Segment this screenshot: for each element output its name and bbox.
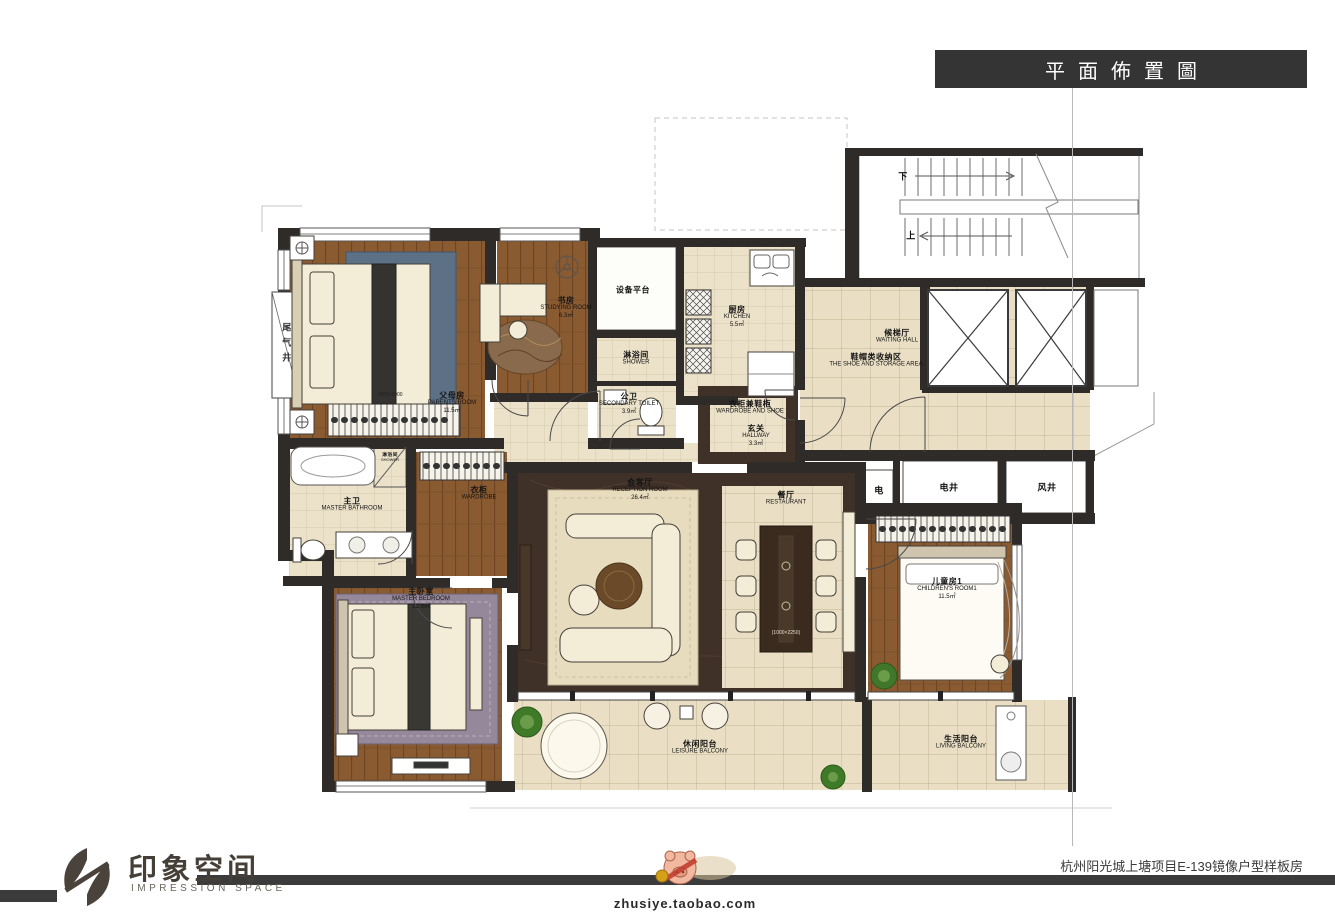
wardrobe-rail: [420, 452, 504, 480]
kitchen-appliance: [686, 319, 711, 344]
impression-space-logo-icon: [56, 846, 118, 908]
page-title: 平面佈置圖: [1032, 55, 1210, 84]
room-label-shower-stall: 淋浴间 SHOWER: [381, 453, 399, 463]
elevators: [928, 290, 1138, 386]
bathtub: [291, 447, 375, 485]
room-label-wardrobe-shoe: 衣柜兼鞋柜 WARDROBE AND SHOE: [716, 400, 784, 417]
room-label-master-bathroom: 主卫 MASTER BATHROOM: [322, 497, 383, 514]
master-headboard: [338, 600, 348, 734]
label-bed-dimension: 1800×2000: [377, 393, 402, 399]
reception-glass-door: [518, 692, 855, 700]
room-label-leisure-balcony: 休闲阳台 LEISURE BALCONY: [672, 740, 728, 757]
room-label-master-bedroom: 主卧室 MASTER BEDROOM 12.9㎡: [392, 587, 450, 611]
living-balcony-furniture: [996, 706, 1026, 780]
label-exhaust-shaft: 尾气井: [281, 323, 292, 368]
room-label-reception: 会客厅 RECEPTION ROOM 26.4㎡: [612, 478, 667, 502]
master-pillow: [352, 668, 374, 716]
room-label-restaurant: 餐厅 RESTAURANT: [766, 491, 806, 508]
logo-text-en: IMPRESSION SPACE: [131, 883, 286, 894]
bed-bench: [470, 618, 482, 710]
balcony-table: [541, 713, 607, 779]
sofa-ottoman: [569, 585, 599, 615]
study-chair: [509, 321, 527, 339]
dining-chair: [736, 540, 756, 560]
master-bed-runner: [408, 604, 430, 730]
label-stair-up: 上: [906, 231, 916, 242]
stool: [991, 655, 1009, 673]
label-table-dimension: (1000×2250): [772, 631, 801, 637]
project-title: 杭州阳光城上塘项目E-139镜像户型样板房: [1060, 856, 1303, 875]
room-label-secondary-toilet: 公卫 SECONDARY TOILET 3.9㎡: [599, 392, 659, 416]
wardrobe-furniture: [420, 452, 504, 480]
title-banner: 平面佈置圖: [935, 50, 1307, 88]
dining-chair: [816, 540, 836, 560]
room-label-hallway: 玄关 HALLWAY 3.3㎡: [742, 424, 770, 448]
kitchen-appliance: [686, 290, 711, 315]
tv-cabinet: [520, 545, 531, 650]
watermark-url: zhusiye.taobao.com: [600, 896, 770, 911]
children-headboard: [898, 546, 1006, 558]
master-nightstand: [336, 734, 358, 756]
logo-text-cn: 印象空间: [128, 846, 260, 888]
toilet-icon: [301, 540, 325, 560]
floor-plan-drawing: [0, 0, 1335, 915]
room-label-shower: 淋浴间 SHOWER: [623, 351, 650, 368]
room-label-wardrobe: 衣柜 WARDROBE: [461, 486, 496, 503]
kitchen-appliance: [686, 348, 711, 373]
bathroom-vanity: [336, 532, 412, 558]
parents-bed-runner: [372, 264, 396, 404]
room-label-parents: 父母房 PARENTS ROOM 11.5㎡: [428, 391, 476, 415]
parents-pillow: [310, 272, 334, 324]
room-label-waiting-hall: 候梯厅 WAITING HALL: [876, 329, 918, 346]
banner-leader-line: [1072, 88, 1073, 846]
balcony-chair: [702, 703, 728, 729]
dining-chair: [736, 576, 756, 596]
room-label-shoe-storage: 鞋帽类收纳区 THE SHOE AND STORAGE AREA: [829, 353, 922, 370]
sideboard: [843, 512, 855, 652]
room-label-kitchen: 厨房 KITCHEN 5.5㎡: [724, 305, 750, 329]
label-wind-shaft: 风井: [1037, 483, 1056, 494]
sofa-chaise: [560, 628, 672, 662]
pig-mascot-icon: [650, 846, 740, 894]
stair-treads-upper: [905, 158, 1022, 196]
room-label-living-balcony: 生活阳台 LIVING BALCONY: [936, 735, 986, 752]
footer-rule-stub: [0, 890, 57, 902]
parents-headboard: [292, 260, 302, 408]
room-label-equipment: 设备平台: [616, 285, 650, 294]
label-stair-down: 下: [898, 172, 908, 183]
label-electric: 电: [874, 486, 884, 497]
shaft-3: [1094, 290, 1138, 386]
sofa-arm-top: [566, 514, 664, 538]
dining-chair: [816, 576, 836, 596]
dining-chair: [816, 612, 836, 632]
footer: 印象空间 IMPRESSION SPACE zhusiye.taobao.com…: [0, 840, 1335, 915]
label-electric-shaft: 电井: [939, 483, 958, 494]
stair-arrow-down: [915, 172, 1014, 180]
parents-pillow: [310, 336, 334, 388]
study-desk-return: [480, 284, 500, 342]
dining-chair: [736, 612, 756, 632]
stair-arrow-up: [920, 232, 1012, 240]
stair-break-line: [1036, 154, 1068, 258]
floor-plan-page: { "title_banner": "平面佈置圖", "plan": { "ro…: [0, 0, 1335, 915]
room-label-study: 书房 STUDYING ROOM 6.3㎡: [540, 296, 591, 320]
coffee-table: [596, 563, 642, 609]
master-pillow: [352, 610, 374, 658]
watermark: zhusiye.taobao.com: [600, 846, 770, 899]
balcony-chair: [644, 703, 670, 729]
room-label-children-room: 儿童房1 CHILDREN'S ROOM1 11.5㎡: [917, 577, 977, 601]
stair-block: [900, 154, 1138, 258]
